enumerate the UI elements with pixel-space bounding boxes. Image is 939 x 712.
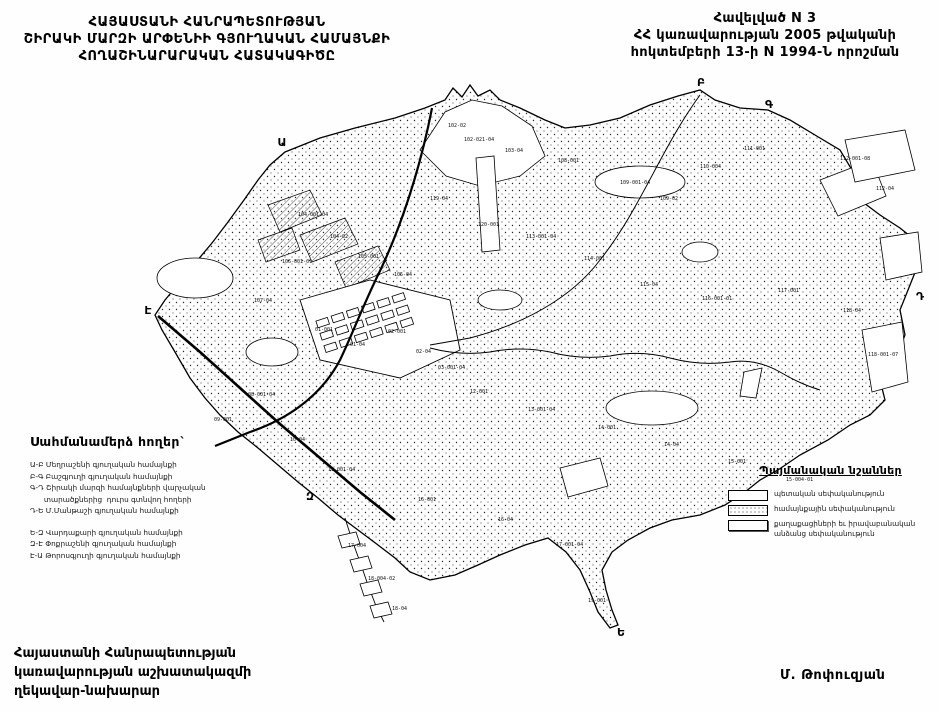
authority-line-3: ղեկավար-նախարար <box>14 682 294 701</box>
signature-name: Մ. Թոփուզյան <box>780 668 885 683</box>
border-land-line: Է-Ա Թորոսգյուղի գյուղական համայնքի <box>30 550 280 562</box>
legend-item-label: քաղաքացիների եւ իրավաբանականանձանց սեփակ… <box>774 519 915 538</box>
parcel-code-label: 104-001-04 <box>298 212 328 218</box>
border-lands-list: Ա-Բ Մեղրաշենի գյուղական համայնքիԲ-Գ Բաշգ… <box>30 459 280 561</box>
border-land-line: Ե-Զ Վարդաքարի գյուղական համայնքի <box>30 527 280 539</box>
appendix-line-3: հոկտեմբերի 13-ի N 1994-Ն որոշման <box>600 44 930 61</box>
legend-item-label: համայնքային սեփականություն <box>774 504 895 514</box>
border-land-line: Ա-Բ Մեղրաշենի գյուղական համայնքի <box>30 459 280 471</box>
parcel-code-label: 118-04 <box>843 308 861 314</box>
parcel-code-label: 110-004 <box>700 164 721 170</box>
parcel-code-label: 105-001 <box>358 254 379 260</box>
parcel-code-label: 111-001 <box>744 146 765 152</box>
border-land-line: Զ-Է Փոքրաշենի գյուղական համայնքի <box>30 538 280 550</box>
parcel-code-label: 14-001 <box>598 425 616 431</box>
legend-heading: Պայմանական նշաններ <box>728 464 933 477</box>
parcel-code-label: 102-021-04 <box>464 137 494 143</box>
parcel-code-label: 112-001-08 <box>840 156 870 162</box>
map-title: ՀԱՅԱՍՏԱՆԻ ՀԱՆՐԱՊԵՏՈՒԹՅԱՆ ՇԻՐԱԿԻ ՄԱՐԶԻ ԱՐ… <box>12 14 402 65</box>
state-ownership-swatch <box>728 490 768 501</box>
border-point-letter: Ա <box>278 136 287 149</box>
cadastral-map: 102-02102-021-04103-04108-001109-001-041… <box>0 0 939 712</box>
parcel-code-label: 09-001 <box>214 417 232 423</box>
authority-line-2: կառավարության աշխատակազմի <box>14 663 294 682</box>
border-land-line: Դ-Ե Մ.Մանթաշի գյուղական համայնքի <box>30 505 280 517</box>
parcel-code-label: 105-04 <box>394 272 412 278</box>
border-point-letter: Ե <box>617 626 625 639</box>
parcel-code-label: 108-001 <box>558 158 579 164</box>
parcel-code-label: 18-004-02 <box>368 576 395 582</box>
legend-items: պետական սեփականությունհամայնքային սեփակա… <box>728 489 933 538</box>
authority-line-1: Հայաստանի Հանրապետության <box>14 644 294 663</box>
parcel-code-label: 10-04 <box>290 437 305 443</box>
parcel-code-label: 02-001 <box>388 329 406 335</box>
border-point-letter: Դ <box>916 290 925 303</box>
title-line-3: ՀՈՂԱՇԻՆԱՐԱՐԱԿԱՆ ՀԱՏԱԿԱԳԻԾԸ <box>12 48 402 65</box>
parcel-code-label: 117-001 <box>778 288 799 294</box>
parcel-code-label: 118-001-07 <box>868 352 898 358</box>
parcel-code-label: 114-001 <box>584 256 605 262</box>
legend-item: քաղաքացիների եւ իրավաբանականանձանց սեփակ… <box>728 519 933 538</box>
community-ownership-swatch <box>728 505 768 516</box>
parcel-code-label: 01-04 <box>350 342 365 348</box>
parcel-code-label: 106-001-01 <box>282 259 312 265</box>
parcel-code-label: 12-001 <box>470 389 488 395</box>
parcel-code-label: 102-02 <box>448 123 466 129</box>
parcel-code-label: 11-001-04 <box>328 467 355 473</box>
border-land-line <box>30 517 280 527</box>
parcel-code-label: 17-001-04 <box>556 542 583 548</box>
title-line-2: ՇԻՐԱԿԻ ՄԱՐԶԻ ԱՐՓԵՆԻԻ ԳՅՈՒՂԱԿԱՆ ՀԱՄԱՅՆՔԻ <box>12 31 402 48</box>
parcel-code-label: 120-001 <box>478 222 499 228</box>
title-line-1: ՀԱՅԱՍՏԱՆԻ ՀԱՆՐԱՊԵՏՈՒԹՅԱՆ <box>12 14 402 31</box>
parcel-code-label: 17-004 <box>348 543 366 549</box>
parcel-code-label: 104-02 <box>330 234 348 240</box>
parcel-code-label: 03-001-04 <box>438 365 465 371</box>
parcel-code-label: 109-02 <box>660 196 678 202</box>
parcel-code-label: 01-001 <box>315 327 333 333</box>
border-land-line: տարածքներից դուրս գտնվող հողերի <box>30 494 280 506</box>
legend-item: համայնքային սեփականություն <box>728 504 933 516</box>
parcel-code-label: 16-001 <box>418 497 436 503</box>
parcel-code-label: 19-001 <box>588 598 606 604</box>
border-point-letter: Է <box>144 304 151 317</box>
border-land-line: Բ-Գ Բաշգյուղի գյուղական համայնքի <box>30 471 280 483</box>
parcel-code-label: 13-001-04 <box>528 407 555 413</box>
border-point-letter: Զ <box>306 490 314 503</box>
parcel-code-label: 107-04 <box>254 298 272 304</box>
appendix-reference: Հավելված N 3 ՀՀ կառավարության 2005 թվակա… <box>600 10 930 61</box>
legend-item-label: պետական սեփականություն <box>774 489 884 499</box>
parcel-code-label: 16-04 <box>498 517 513 523</box>
parcel-code-label: 113-001-04 <box>526 234 556 240</box>
parcel-code-label: 119-04 <box>430 196 448 202</box>
parcel-code-label: 109-001-04 <box>620 180 650 186</box>
issuing-authority: Հայաստանի Հանրապետության կառավարության ա… <box>14 644 294 701</box>
parcel-code-label: 08-001-04 <box>248 392 275 398</box>
citizens-ownership-swatch <box>728 520 768 531</box>
border-lands-heading: Սահմանամերձ հողեր` <box>30 434 280 449</box>
border-lands-legend: Սահմանամերձ հողեր` Ա-Բ Մեղրաշենի գյուղակ… <box>30 434 280 561</box>
parcel-code-label: 115-04 <box>640 282 658 288</box>
parcel-code-label: 112-04 <box>876 186 894 192</box>
parcel-code-label: 18-04 <box>392 606 407 612</box>
parcel-code-label: 02-04 <box>416 349 431 355</box>
parcel-code-label: 14-04 <box>664 442 679 448</box>
appendix-line-1: Հավելված N 3 <box>600 10 930 27</box>
border-point-letter: Բ <box>697 76 705 89</box>
appendix-line-2: ՀՀ կառավարության 2005 թվականի <box>600 27 930 44</box>
scanned-map-page: 102-02102-021-04103-04108-001109-001-041… <box>0 0 939 712</box>
border-point-letter: Գ <box>765 98 774 111</box>
parcel-code-label: 103-04 <box>505 148 523 154</box>
parcel-code-label: 116-001-01 <box>702 296 732 302</box>
border-land-line: Գ-Դ Շիրակի մարզի համայնքների վարչական <box>30 482 280 494</box>
conventional-signs-legend: Պայմանական նշաններ պետական սեփականությու… <box>728 464 933 541</box>
legend-item: պետական սեփականություն <box>728 489 933 501</box>
